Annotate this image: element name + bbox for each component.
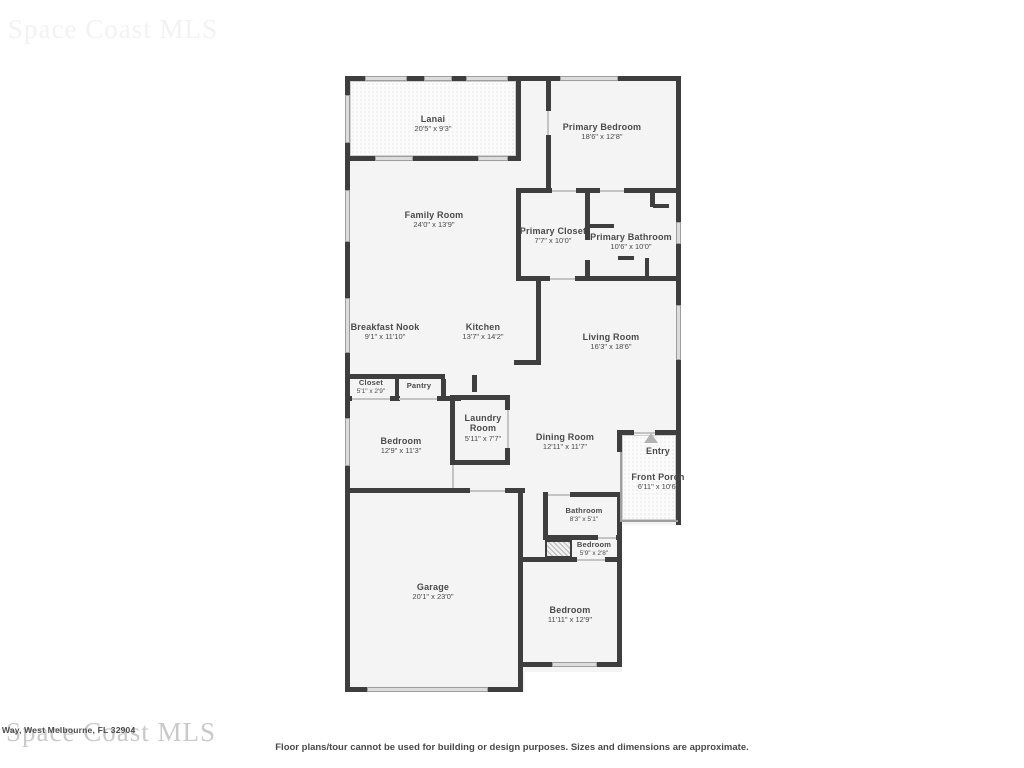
wall (505, 395, 510, 410)
wall (617, 430, 622, 452)
window (466, 76, 508, 81)
room-label-entry: Entry (646, 446, 670, 456)
wall (345, 76, 350, 692)
door-opening (352, 398, 390, 400)
wall (450, 395, 455, 465)
room-label-primary-bathroom: Primary Bathroom 10'6" x 10'0" (590, 232, 672, 252)
room-label-kitchen: Kitchen 13'7" x 14'2" (462, 322, 503, 342)
door-opening (577, 559, 605, 561)
window (365, 76, 407, 81)
room-label-family-room: Family Room 24'0" x 13'9" (405, 210, 464, 230)
room-label-garage: Garage 20'1" x 23'0" (412, 582, 453, 602)
watermark-top: Space Coast MLS (8, 14, 218, 45)
window (560, 76, 618, 81)
door-opening (399, 398, 437, 400)
window (375, 156, 413, 161)
window (345, 95, 350, 143)
wall (653, 204, 669, 208)
room-label-bedroom-closet: Bedroom 5'9" x 2'8" (577, 541, 611, 557)
wall (516, 81, 521, 161)
room-label-bedroom-left: Bedroom 12'9" x 11'3" (381, 436, 422, 456)
wall (345, 396, 352, 401)
window (345, 190, 350, 242)
floor-plan: Lanai 20'5" x 9'3" Primary Bedroom 18'6"… (0, 0, 1024, 768)
wall (488, 687, 523, 692)
room-label-bedroom-bottom: Bedroom 11'11" x 12'9" (548, 605, 592, 625)
door-opening (552, 190, 576, 192)
room-label-primary-closet: Primary Closet 7'7" x 10'0" (520, 226, 586, 246)
disclaimer-text: Floor plans/tour cannot be used for buil… (275, 742, 749, 753)
wall (455, 460, 510, 465)
door-opening (547, 111, 549, 135)
window (345, 418, 350, 466)
wall (676, 76, 681, 525)
window (478, 156, 508, 161)
listing-address: tos Way, West Melbourne, FL 32904 (0, 725, 135, 735)
wall (546, 81, 551, 111)
window (424, 76, 452, 81)
door-opening (470, 490, 505, 492)
door-opening (550, 278, 575, 280)
wall (521, 188, 552, 193)
wall (597, 662, 622, 667)
window (552, 662, 597, 667)
window (676, 222, 681, 244)
window (676, 305, 681, 360)
door-opening (598, 537, 616, 539)
room-label-lanai: Lanai 20'5" x 9'3" (415, 114, 452, 134)
room-label-dining-room: Dining Room 12'11" x 11'7" (536, 432, 594, 452)
window (622, 520, 678, 522)
wall (345, 488, 470, 493)
wall (575, 276, 681, 281)
wall (522, 662, 552, 667)
door-opening (507, 410, 509, 448)
room-label-bathroom: Bathroom 8'3" x 5'1" (565, 507, 602, 523)
entry-direction-icon (644, 433, 658, 443)
wall (546, 135, 551, 193)
wall (618, 256, 634, 260)
door-opening (600, 190, 624, 192)
hatched-fixture (545, 540, 572, 558)
wall (536, 281, 541, 365)
wall (472, 375, 477, 392)
room-label-pantry: Pantry (407, 382, 432, 391)
wall (516, 276, 550, 281)
wall (655, 430, 681, 435)
room-label-laundry-room: Laundry Room 5'11" x 7'7" (459, 413, 507, 443)
window (367, 687, 488, 692)
room-label-living-room: Living Room 16'3" x 18'6" (583, 332, 640, 352)
room-label-primary-bedroom: Primary Bedroom 18'6" x 12'8" (563, 122, 642, 142)
wall (590, 224, 614, 228)
room-label-front-porch: Front Porch 6'11" x 10'6" (631, 472, 684, 492)
window (345, 298, 350, 353)
room-label-breakfast-nook: Breakfast Nook 9'1" x 11'10" (351, 322, 420, 342)
wall (570, 492, 622, 497)
wall (455, 395, 510, 400)
room-label-closet: Closet 5'1" x 2'9" (357, 379, 385, 395)
window (620, 452, 622, 522)
wall (543, 497, 548, 540)
door-opening (548, 494, 570, 496)
door-opening (452, 465, 454, 488)
wall (514, 360, 541, 365)
